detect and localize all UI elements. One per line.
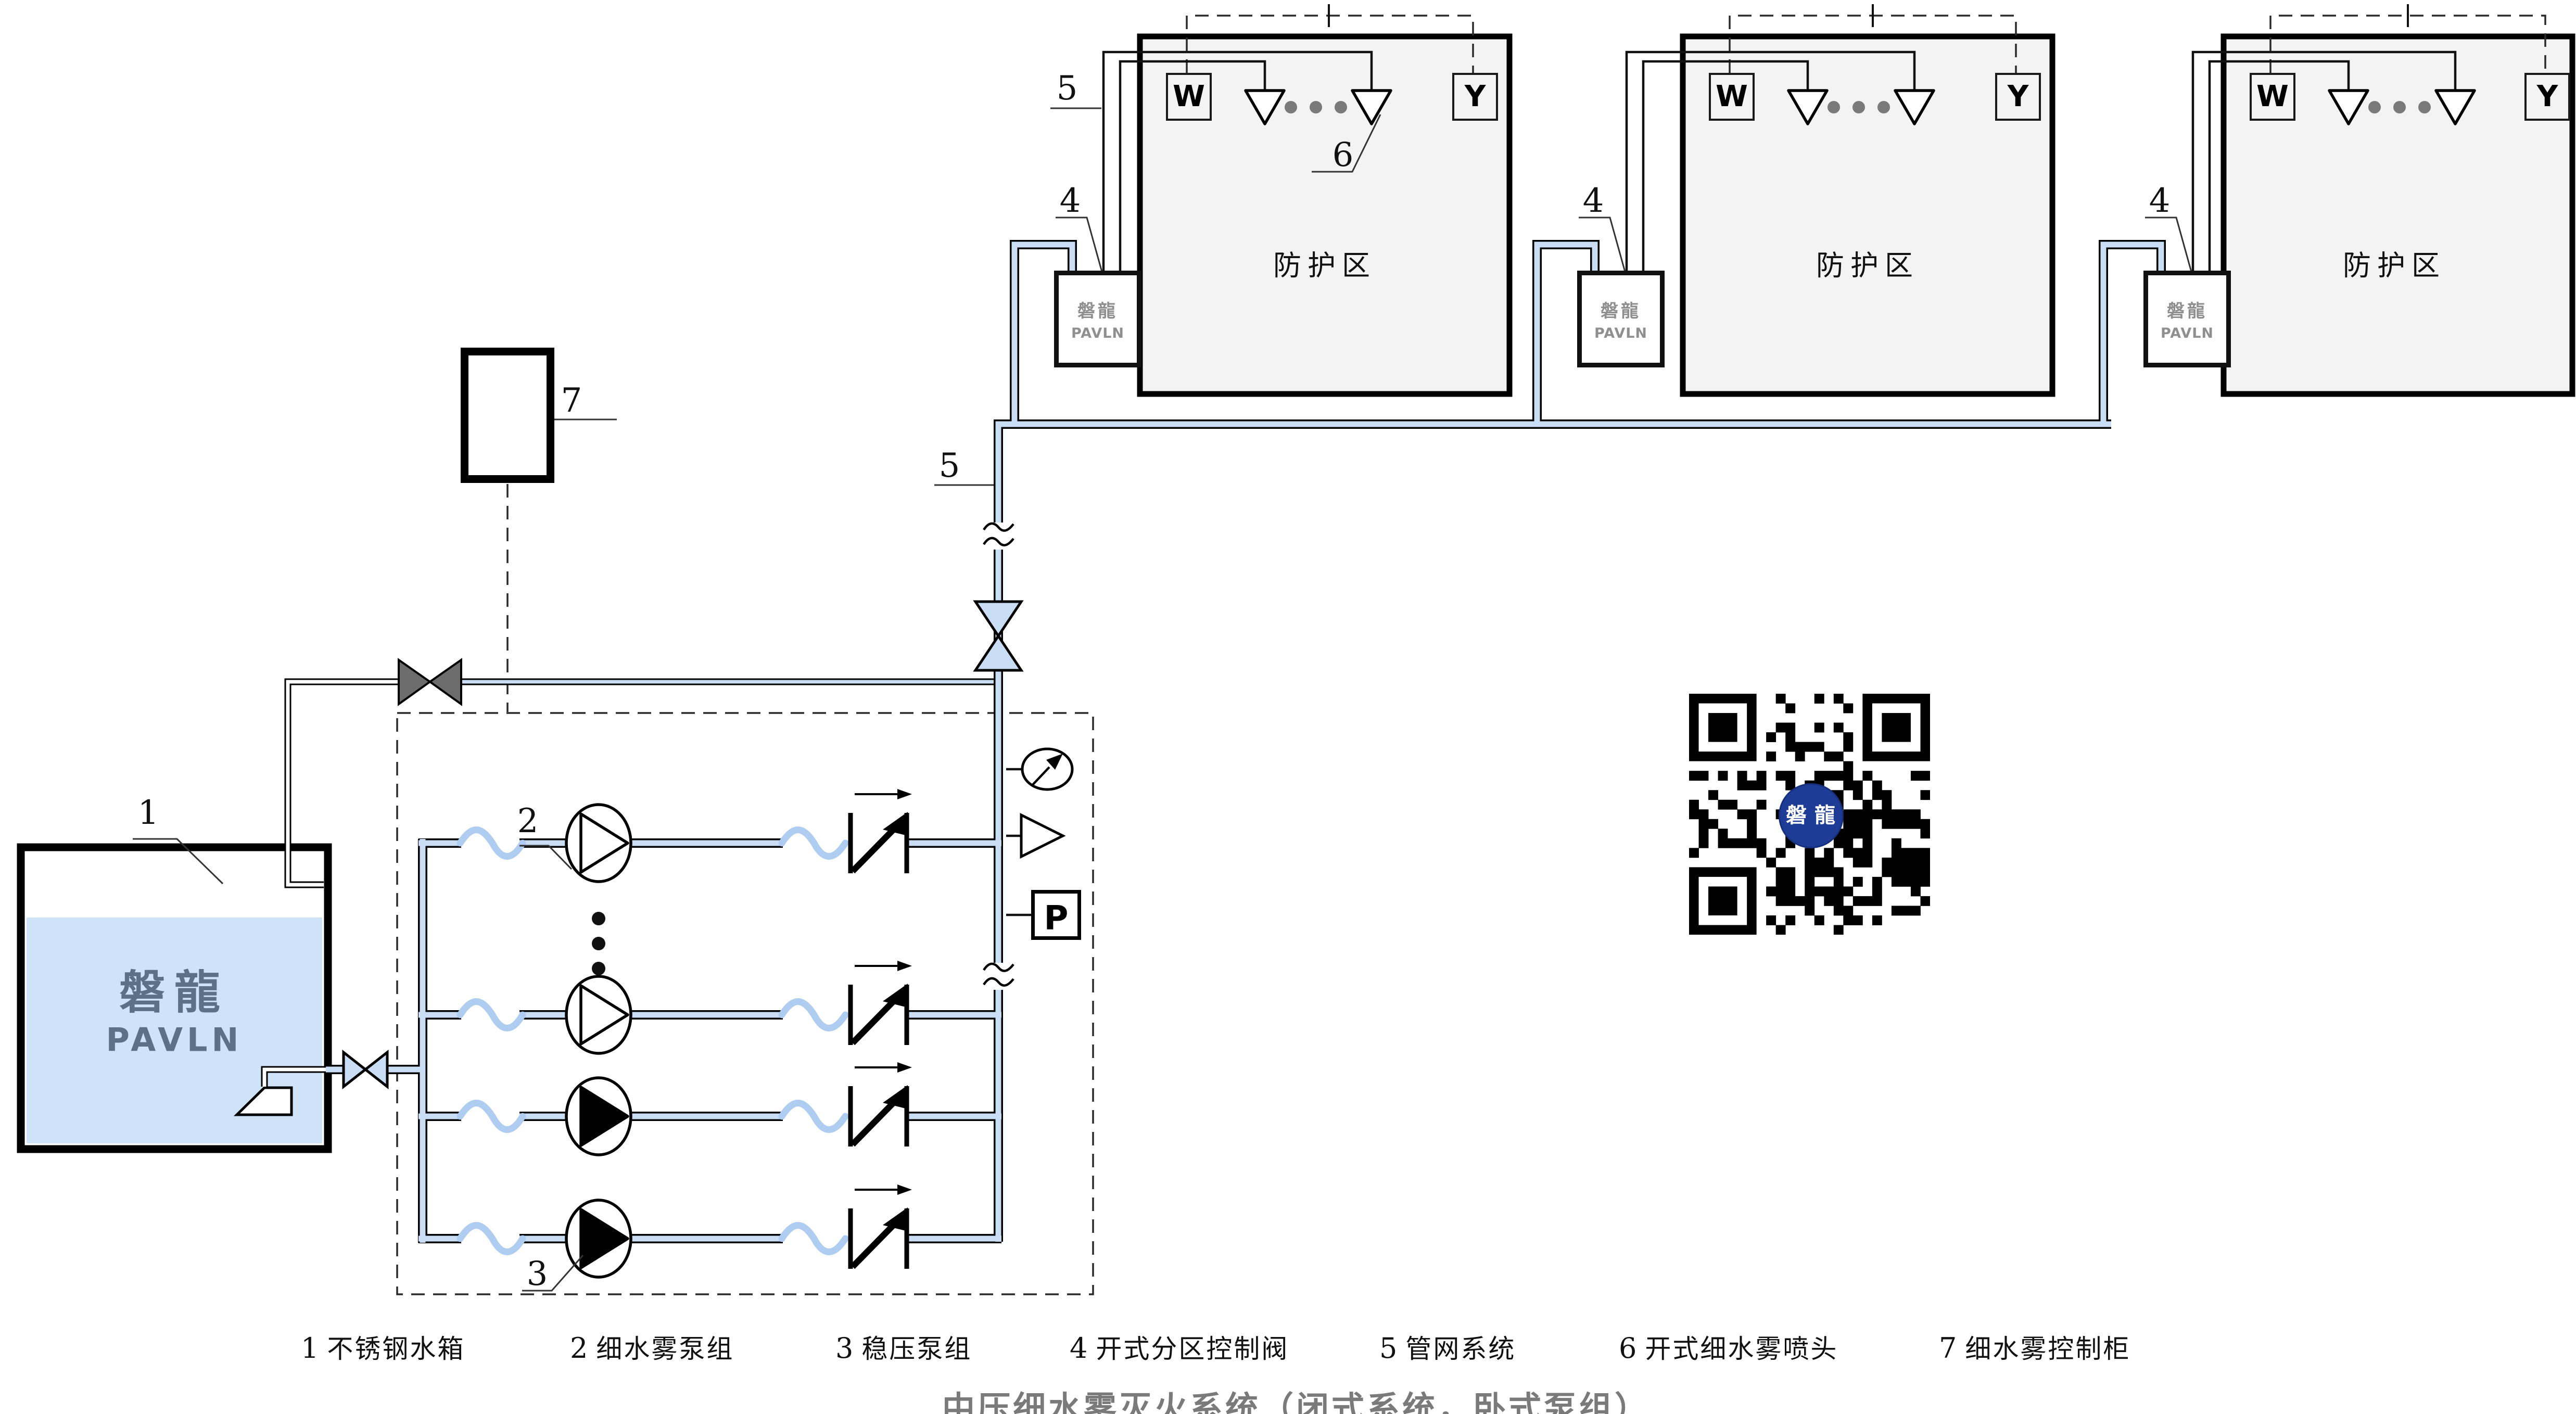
callout-4: 4 [1060, 182, 1081, 220]
piping-diagram [0, 0, 2576, 1414]
riser-gate-valve-icon [975, 602, 1021, 636]
zone3-detector-y: Y [2524, 73, 2570, 121]
legend-item-3: 3稳压泵组 [835, 1328, 972, 1366]
callout-1: 1 [138, 794, 159, 832]
legend-item-6: 6开式细水雾喷头 [1619, 1328, 1838, 1366]
tank-brand-en: PAVLN [106, 1021, 243, 1059]
callout-7: 7 [561, 381, 582, 420]
check-valve-icon [851, 1184, 912, 1269]
pump-icon [566, 805, 631, 882]
pump-icon [566, 976, 631, 1053]
legend-item-4: 4开式分区控制阀 [1070, 1328, 1289, 1366]
zone3-detector-w: W [2250, 73, 2295, 121]
zone1-control-valve-box: 磐龍 PAVLN [1054, 271, 1141, 367]
tank-brand-cn: 磐龍 [119, 956, 230, 1022]
zone1-detector-w: W [1166, 73, 1212, 121]
zone2-label: 防护区 [1816, 243, 1919, 284]
return-valve-icon [430, 660, 461, 704]
diagram-canvas: W Y W Y W Y 防护区 防护区 防护区 磐龍 PAVLN 磐龍 PAVL… [0, 0, 2576, 1414]
pump-icon [566, 1078, 631, 1155]
brand-logo: 磐龍 [1077, 297, 1118, 322]
check-valve-icon [851, 1062, 912, 1147]
detector-loop-ticks [1329, 4, 2408, 27]
legend-item-2: 2细水雾泵组 [570, 1328, 734, 1366]
zone3-control-valve-box: 磐龍 PAVLN [2143, 271, 2231, 367]
qr-code: 磐 龍 [1689, 694, 1930, 935]
callout-5: 5 [939, 447, 960, 485]
brand-logo: 磐龍 [1601, 297, 1641, 322]
callout-4: 4 [1583, 182, 1604, 220]
riser-gate-valve-icon [975, 636, 1021, 670]
zone2-detector-y: Y [1995, 73, 2041, 121]
suction-valve-icon [365, 1052, 387, 1087]
callout-3: 3 [527, 1255, 548, 1293]
flexible-hoses-layer [460, 830, 845, 1252]
brand-logo-en: PAVLN [1594, 325, 1647, 341]
check-valve-icon [851, 961, 912, 1045]
flow-indicator-icon [1021, 815, 1063, 857]
zone1-label: 防护区 [1273, 243, 1376, 284]
zone2-control-valve-box: 磐龍 PAVLN [1577, 271, 1665, 367]
zone1-detector-y: Y [1452, 73, 1498, 121]
callout-6: 6 [1333, 136, 1354, 174]
brand-logo: 磐龍 [2167, 297, 2207, 322]
zone2-detector-w: W [1709, 73, 1755, 121]
callout-5: 5 [1057, 69, 1078, 108]
qr-brand-logo: 磐 龍 [1779, 783, 1844, 848]
callout-4: 4 [2149, 182, 2171, 220]
legend-item-5: 5管网系统 [1379, 1328, 1516, 1366]
zone3-label: 防护区 [2343, 243, 2446, 284]
legend-item-1: 1不锈钢水箱 [301, 1328, 465, 1366]
return-valve-icon [399, 660, 430, 704]
pumps-layer [566, 789, 912, 1277]
callout-2: 2 [517, 802, 539, 840]
brand-logo-en: PAVLN [1071, 325, 1124, 341]
diagram-title: 中压细水雾灭火系统（闭式系统，卧式泵组） [942, 1382, 1650, 1414]
control-cabinet [461, 348, 554, 483]
pump-icon [566, 1200, 631, 1277]
pressure-switch: P [1031, 890, 1081, 940]
pump-room-boundary [397, 713, 1093, 1294]
check-valve-icon [851, 789, 912, 873]
brand-logo-en: PAVLN [2161, 325, 2214, 341]
legend-item-7: 7细水雾控制柜 [1939, 1328, 2130, 1366]
suction-valve-icon [344, 1052, 365, 1087]
